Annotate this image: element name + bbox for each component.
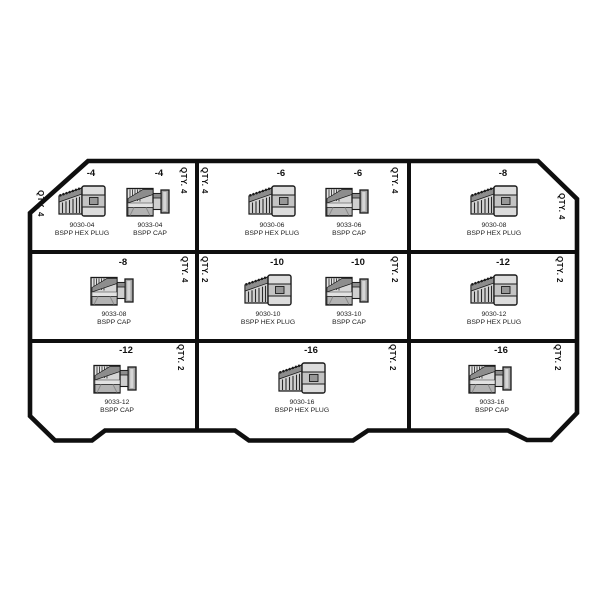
qty-label: QTY. 2 bbox=[553, 344, 562, 371]
fitting-item: -12 9030-12 BSPP HEX PLUG bbox=[449, 258, 539, 328]
part-number: 9030-12 bbox=[482, 311, 507, 320]
fitting-item: -8 9033-08 BSPP CAP bbox=[69, 258, 159, 328]
part-number: 9033-06 bbox=[337, 222, 362, 231]
size-label: -12 bbox=[496, 258, 510, 268]
size-label: -12 bbox=[119, 346, 133, 356]
size-label: -6 bbox=[354, 169, 362, 179]
fitting-item: -8 9030-08 BSPP HEX PLUG bbox=[449, 169, 539, 239]
size-label: -8 bbox=[119, 258, 127, 268]
part-number: 9030-08 bbox=[482, 222, 507, 231]
part-name: BSPP CAP bbox=[97, 319, 131, 328]
part-name: BSPP CAP bbox=[332, 319, 366, 328]
hex-plug-illustration bbox=[56, 183, 108, 219]
fitting-item: -12 9033-12 BSPP CAP bbox=[72, 346, 162, 416]
fitting-item: -4 9033-04 BSPP CAP bbox=[105, 169, 195, 239]
part-number: 9033-10 bbox=[337, 311, 362, 320]
part-name: BSPP HEX PLUG bbox=[467, 230, 521, 239]
qty-label: QTY. 2 bbox=[388, 344, 397, 371]
part-name: BSPP CAP bbox=[475, 407, 509, 416]
part-name: BSPP HEX PLUG bbox=[241, 319, 295, 328]
cap-illustration bbox=[323, 183, 375, 219]
qty-label: QTY. 2 bbox=[200, 256, 209, 283]
part-name: BSPP CAP bbox=[332, 230, 366, 239]
hex-plug-illustration bbox=[242, 272, 294, 308]
part-name: BSPP HEX PLUG bbox=[467, 319, 521, 328]
size-label: -4 bbox=[87, 169, 95, 179]
size-label: -6 bbox=[277, 169, 285, 179]
qty-label: QTY. 4 bbox=[180, 256, 189, 283]
size-label: -16 bbox=[494, 346, 508, 356]
qty-label: QTY. 2 bbox=[176, 344, 185, 371]
size-label: -4 bbox=[155, 169, 163, 179]
cap-illustration bbox=[88, 272, 140, 308]
part-name: BSPP HEX PLUG bbox=[275, 407, 329, 416]
part-number: 9033-04 bbox=[138, 222, 163, 231]
qty-label: QTY. 4 bbox=[557, 193, 566, 220]
part-number: 9030-10 bbox=[256, 311, 281, 320]
part-number: 9033-08 bbox=[102, 311, 127, 320]
kit-layout-diagram: QTY. 4 QTY. 4 -4 9030-04 BSPP HEX PLUG -… bbox=[0, 0, 608, 608]
part-number: 9030-04 bbox=[70, 222, 95, 231]
part-number: 9030-06 bbox=[260, 222, 285, 231]
size-label: -16 bbox=[304, 346, 318, 356]
part-name: BSPP CAP bbox=[100, 407, 134, 416]
size-label: -8 bbox=[499, 169, 507, 179]
cap-illustration bbox=[466, 360, 518, 396]
size-label: -10 bbox=[351, 258, 365, 268]
fitting-item: -6 9033-06 BSPP CAP bbox=[304, 169, 394, 239]
fitting-item: -10 9033-10 BSPP CAP bbox=[304, 258, 394, 328]
qty-label: QTY. 4 bbox=[200, 167, 209, 194]
part-number: 9033-16 bbox=[480, 399, 505, 408]
part-name: BSPP HEX PLUG bbox=[55, 230, 109, 239]
part-name: BSPP HEX PLUG bbox=[245, 230, 299, 239]
part-number: 9030-16 bbox=[290, 399, 315, 408]
fitting-item: -10 9030-10 BSPP HEX PLUG bbox=[223, 258, 313, 328]
cap-illustration bbox=[91, 360, 143, 396]
part-number: 9033-12 bbox=[105, 399, 130, 408]
fitting-item: -16 9033-16 BSPP CAP bbox=[447, 346, 537, 416]
fitting-item: -16 9030-16 BSPP HEX PLUG bbox=[257, 346, 347, 416]
size-label: -10 bbox=[270, 258, 284, 268]
hex-plug-illustration bbox=[468, 183, 520, 219]
cap-illustration bbox=[124, 183, 176, 219]
cap-illustration bbox=[323, 272, 375, 308]
qty-label: QTY. 2 bbox=[555, 256, 564, 283]
hex-plug-illustration bbox=[246, 183, 298, 219]
part-name: BSPP CAP bbox=[133, 230, 167, 239]
hex-plug-illustration bbox=[276, 360, 328, 396]
hex-plug-illustration bbox=[468, 272, 520, 308]
